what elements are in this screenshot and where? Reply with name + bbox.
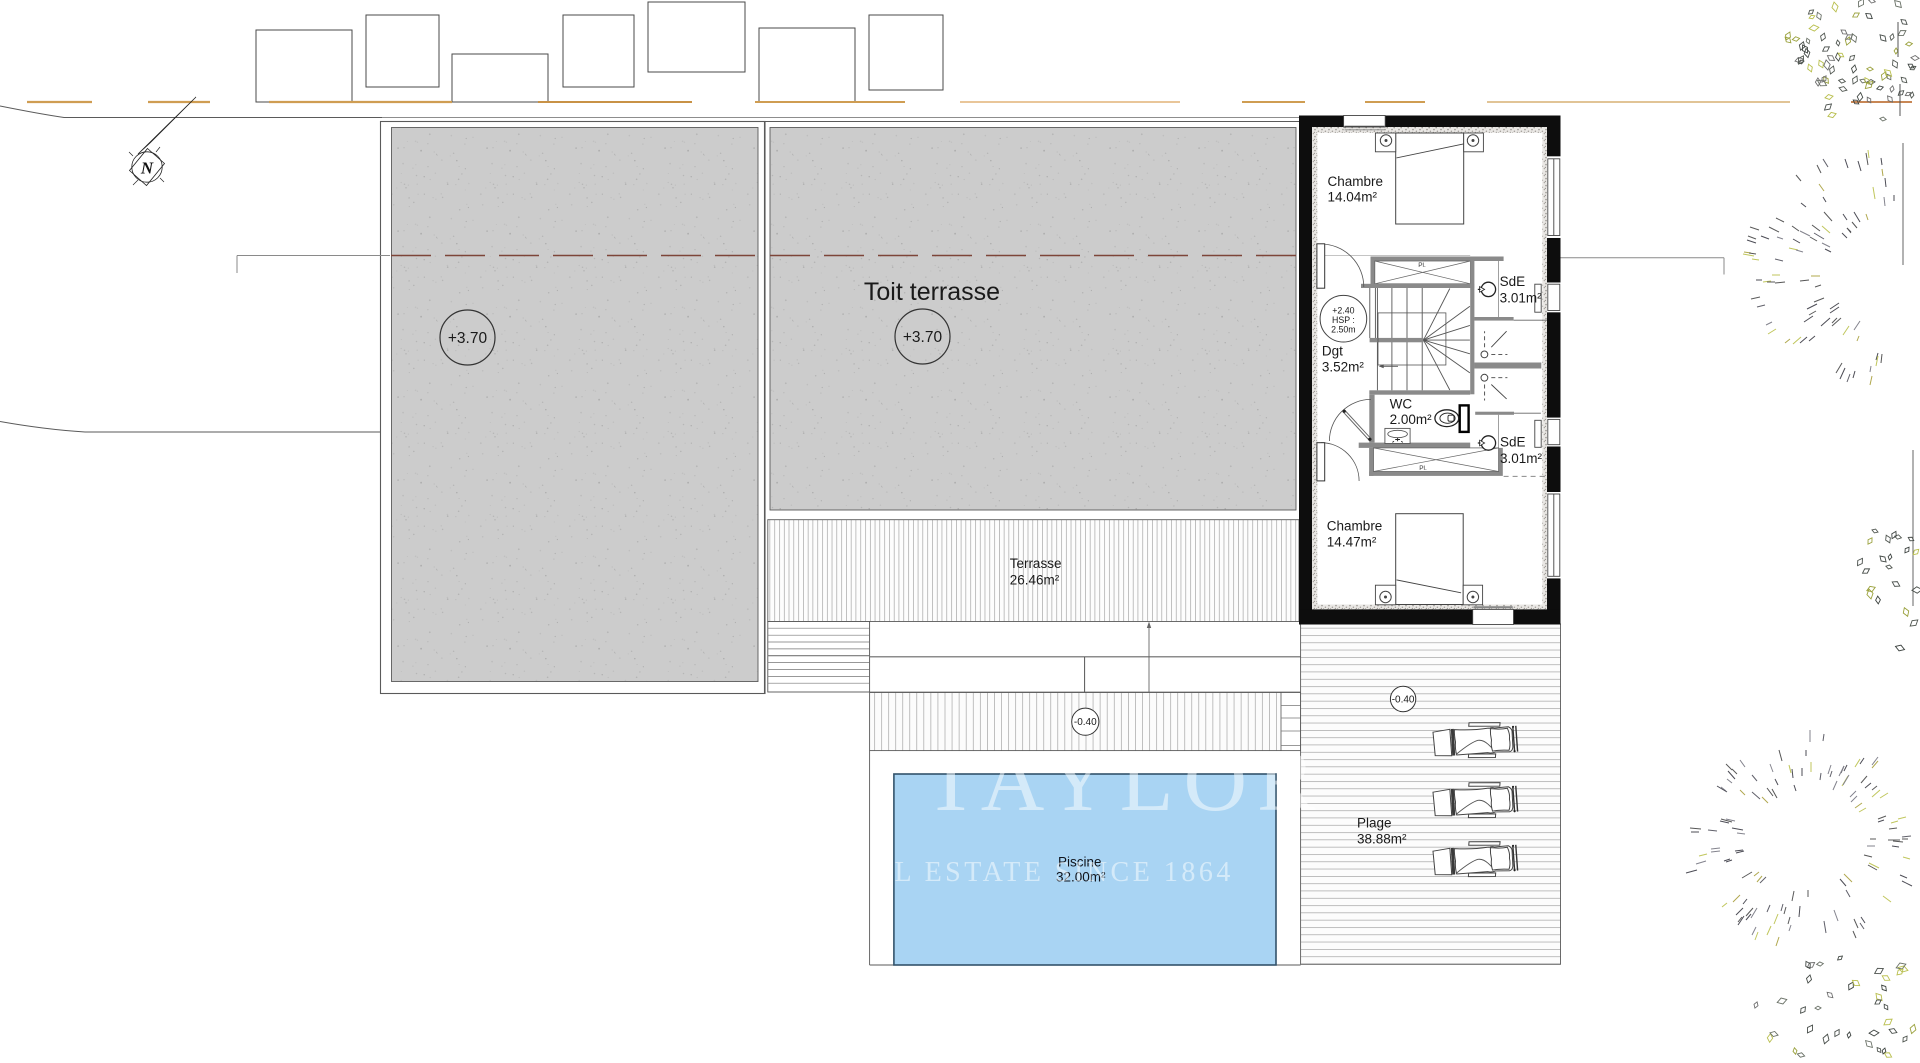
svg-text:Pl.: Pl. xyxy=(1419,465,1427,472)
svg-text:+3.70: +3.70 xyxy=(903,329,943,346)
svg-text:TAYLOR: TAYLOR xyxy=(924,733,1326,830)
svg-text:N: N xyxy=(140,159,154,178)
svg-text:Terrasse: Terrasse xyxy=(1010,556,1062,571)
svg-text:14.04m²: 14.04m² xyxy=(1328,190,1378,205)
svg-text:Dgt: Dgt xyxy=(1322,344,1343,359)
svg-text:2.00m²: 2.00m² xyxy=(1390,412,1433,427)
svg-text:14.47m²: 14.47m² xyxy=(1327,535,1377,550)
svg-text:Plage: Plage xyxy=(1357,816,1392,831)
svg-text:Chambre: Chambre xyxy=(1328,174,1384,189)
svg-text:26.46m²: 26.46m² xyxy=(1010,573,1060,588)
svg-text:-0.40: -0.40 xyxy=(1392,695,1415,706)
svg-text:REAL ESTATE SINCE 1864: REAL ESTATE SINCE 1864 xyxy=(828,857,1234,888)
svg-text:Chambre: Chambre xyxy=(1327,519,1383,534)
svg-text:-0.40: -0.40 xyxy=(1074,717,1097,728)
svg-text:3.52m²: 3.52m² xyxy=(1322,360,1365,375)
svg-text:3.01m²: 3.01m² xyxy=(1500,451,1543,466)
svg-text:2.50m: 2.50m xyxy=(1331,325,1355,335)
svg-text:+3.70: +3.70 xyxy=(448,330,488,347)
svg-text:WC: WC xyxy=(1390,397,1413,412)
svg-text:HSP :: HSP : xyxy=(1332,315,1355,325)
svg-text:SdE: SdE xyxy=(1500,435,1526,450)
svg-text:SdE: SdE xyxy=(1500,274,1526,289)
svg-text:+2.40: +2.40 xyxy=(1332,306,1354,316)
svg-text:3.01m²: 3.01m² xyxy=(1500,291,1543,306)
svg-text:Toit terrasse: Toit terrasse xyxy=(864,278,1000,306)
svg-text:38.88m²: 38.88m² xyxy=(1357,832,1407,847)
svg-text:Pl.: Pl. xyxy=(1418,262,1426,269)
